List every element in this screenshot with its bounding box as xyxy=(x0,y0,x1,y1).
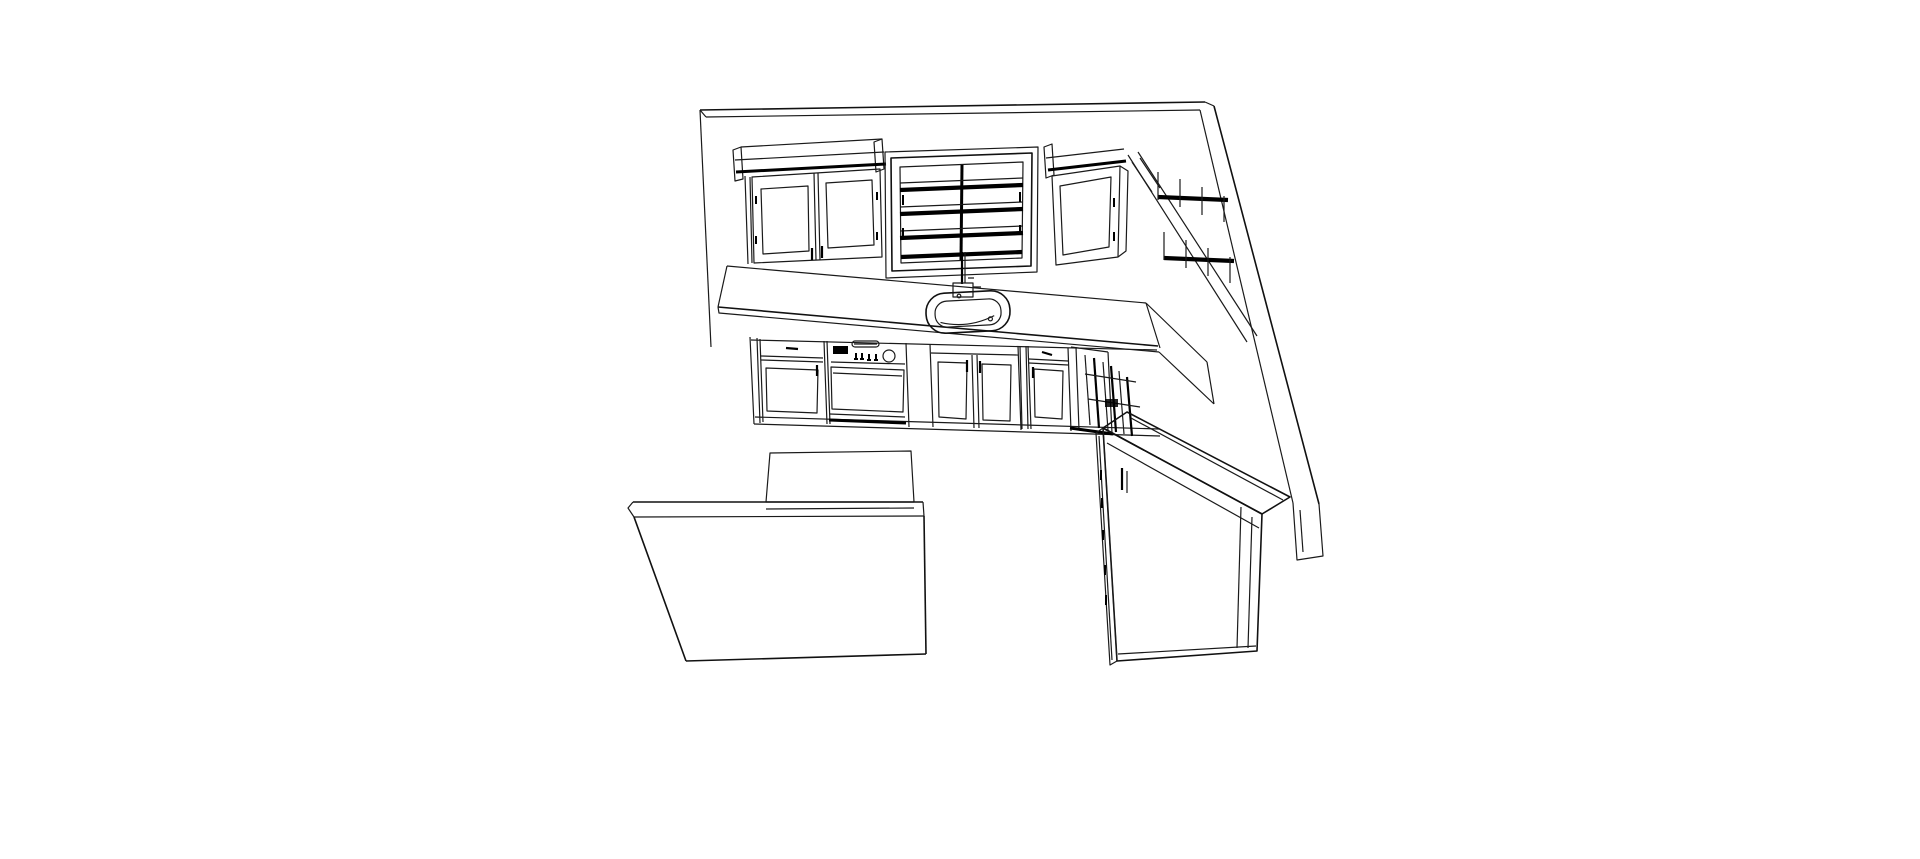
corner-base-cabinet[interactable] xyxy=(1071,347,1112,433)
wall-inner-slope xyxy=(1200,110,1293,503)
island-front-left-edge xyxy=(634,517,686,661)
side-line-1 xyxy=(1085,355,1090,425)
window-mullion-bar-3 xyxy=(900,233,1023,238)
shelf-band-2 xyxy=(1164,258,1234,261)
sink-drain xyxy=(988,317,992,321)
island[interactable] xyxy=(628,451,926,661)
fridge-left-side xyxy=(1096,428,1117,665)
base-cabinet-drawer-door[interactable] xyxy=(760,339,827,424)
fridge-door-gap xyxy=(1107,443,1259,528)
cornice-band-bottom xyxy=(1048,161,1126,170)
faucet-body xyxy=(953,283,973,297)
counter-front-edge xyxy=(718,307,1158,346)
cornice-back-edge xyxy=(741,139,882,147)
wall-cabinet-single-door[interactable] xyxy=(1044,144,1128,265)
shelf-band-1 xyxy=(1158,197,1228,200)
drawing-canvas[interactable]: Kitchen 3D perspective wireframe drawing xyxy=(0,0,1920,859)
control-panel-bottom xyxy=(831,362,905,364)
door-panel xyxy=(1060,177,1111,255)
range-display xyxy=(833,346,848,354)
door-right-panel xyxy=(982,364,1011,421)
wall-bottom-fold xyxy=(1293,503,1323,560)
wall-fold-inner-line xyxy=(1300,510,1303,552)
run-top-rail xyxy=(751,340,1157,350)
wall-top-inner-edge xyxy=(706,110,1200,117)
countertop[interactable] xyxy=(718,266,1214,404)
range-knob-1 xyxy=(854,353,858,359)
hinge-ticks xyxy=(756,192,877,244)
sink-base-cabinet-double-door[interactable] xyxy=(930,344,1021,430)
center-stiles xyxy=(972,355,979,428)
island-front-bottom-edge xyxy=(686,654,926,661)
small-base-cabinet[interactable] xyxy=(1028,346,1071,431)
wall-top-end xyxy=(1205,102,1214,106)
back-wall[interactable] xyxy=(700,102,1205,347)
wall-outer-slope xyxy=(1214,106,1319,504)
refrigerator[interactable] xyxy=(1096,412,1290,665)
wall-cabinet-double-door[interactable] xyxy=(733,139,886,264)
cabinet-side-left xyxy=(745,176,752,264)
fridge-top-inner xyxy=(1131,418,1283,500)
island-back-top xyxy=(766,451,914,502)
door-left-panel xyxy=(938,362,967,419)
range-knob-4 xyxy=(874,354,878,360)
corner-face xyxy=(1071,347,1112,433)
island-counter-band-bottom xyxy=(634,516,924,517)
range-knob-2 xyxy=(860,353,864,359)
rail-line-1 xyxy=(1085,374,1136,382)
drawer-handle xyxy=(1042,352,1052,355)
island-band-right-end xyxy=(923,502,924,516)
door-right-panel xyxy=(826,180,874,248)
cornice-cap xyxy=(1044,144,1054,178)
counter-back-edge xyxy=(727,266,1146,303)
sink-basin-shadow xyxy=(940,316,994,326)
door-panel xyxy=(766,368,818,413)
counter-left-end xyxy=(718,266,727,307)
wall-top-outer-edge xyxy=(700,102,1205,110)
range-base-shadow xyxy=(829,420,906,423)
range-knob-3 xyxy=(867,354,871,360)
counter-corner-strip xyxy=(1146,303,1214,404)
drawer-handle xyxy=(786,348,798,349)
cabinet-carcass xyxy=(752,169,882,263)
side-line-3 xyxy=(1103,362,1108,430)
right-run-wall-cabinets[interactable] xyxy=(1128,152,1257,342)
island-band-left-cap xyxy=(628,502,634,517)
corner-hatch xyxy=(1132,158,1160,192)
filler-stiles xyxy=(1020,346,1028,429)
kitchen-drawing[interactable]: Kitchen 3D perspective wireframe drawing xyxy=(0,0,1920,859)
warming-drawer xyxy=(830,414,905,417)
range[interactable] xyxy=(827,341,909,427)
cornice-band-top xyxy=(735,152,884,160)
strip-edge-2 xyxy=(1138,152,1257,336)
cornice-band-bottom xyxy=(736,164,886,172)
door-left-panel xyxy=(761,186,809,254)
wall-left-edge xyxy=(700,110,711,347)
top-rail xyxy=(931,353,1018,355)
island-front-right-edge xyxy=(924,516,926,654)
center-stiles xyxy=(814,173,820,260)
right-run-base-cabinets[interactable] xyxy=(1070,355,1140,436)
run-left-side xyxy=(750,337,760,424)
range-dial xyxy=(883,350,895,362)
cornice-band-top xyxy=(1046,149,1124,158)
faucet-base-dot xyxy=(957,294,961,298)
fridge-door-split xyxy=(1237,507,1241,648)
island-band-inner-line xyxy=(766,508,914,509)
cornice-cap-right xyxy=(874,139,884,172)
oven-door-inner xyxy=(833,373,902,376)
drawer-band xyxy=(761,356,823,362)
window-mullion-bar-2 xyxy=(900,209,1023,214)
side-line-6 xyxy=(1127,377,1132,436)
side-line-2 xyxy=(1094,358,1099,428)
drawer-band xyxy=(1029,359,1068,365)
wall-corner-join xyxy=(700,110,706,117)
cornice-cap-left xyxy=(733,147,743,181)
fridge-right-inner-edge xyxy=(1248,517,1252,648)
window-mullion-bar-1 xyxy=(900,185,1023,190)
shadow-blob xyxy=(1105,399,1118,407)
door-panel xyxy=(1034,369,1063,419)
